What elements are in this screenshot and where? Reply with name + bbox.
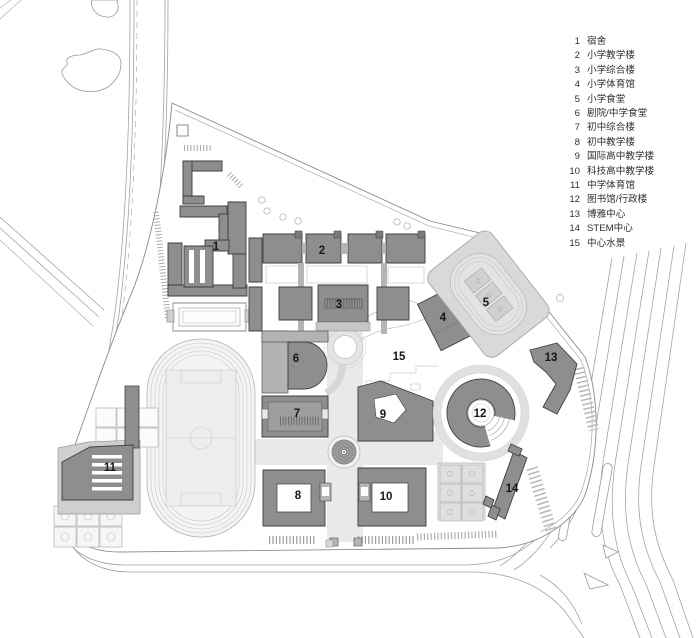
legend-item: 8初中教学楼: [566, 136, 700, 150]
legend-item: 10科技高中教学楼: [566, 165, 700, 179]
legend-num: 1: [566, 35, 580, 49]
traffic-island: [603, 545, 618, 558]
legend-item: 2小学教学楼: [566, 49, 700, 63]
building-label-14: 14: [506, 483, 519, 495]
running-track: [147, 339, 255, 537]
utility-square: [177, 125, 188, 136]
legend-num: 8: [566, 136, 580, 150]
pool-pavilion: [167, 303, 252, 331]
building-label-13: 13: [545, 352, 558, 364]
traffic-island: [584, 573, 608, 589]
legend-label: 小学教学楼: [587, 49, 635, 63]
corner-road-ticks: [0, 0, 21, 19]
legend-num: 10: [566, 165, 580, 179]
building-label-11: 11: [104, 462, 117, 474]
legend-item: 12图书馆/行政楼: [566, 193, 700, 207]
legend-item: 13博雅中心: [566, 208, 700, 222]
building-label-15: 15: [393, 351, 406, 363]
legend-item: 9国际高中教学楼: [566, 150, 700, 164]
pond-west: [62, 49, 121, 92]
legend-item: 1宿舍: [566, 35, 700, 49]
legend-num: 6: [566, 107, 580, 121]
legend-num: 13: [566, 208, 580, 222]
legend-item: 15中心水景: [566, 237, 700, 251]
legend-num: 15: [566, 237, 580, 251]
circular-plaza: [324, 326, 366, 368]
building-label-6: 6: [293, 353, 299, 365]
pond-north: [92, 0, 119, 17]
legend-label: 初中教学楼: [587, 136, 635, 150]
building-label-7: 7: [294, 408, 300, 420]
legend-label: 小学体育馆: [587, 78, 635, 92]
building-label-5: 5: [483, 297, 490, 309]
legend-item: 7初中综合楼: [566, 121, 700, 135]
legend: 1宿舍 2小学教学楼 3小学综合楼 4小学体育馆 5小学食堂 6剧院/中学食堂 …: [566, 35, 700, 251]
building-label-4: 4: [440, 312, 447, 324]
legend-num: 12: [566, 193, 580, 207]
ponds: [62, 0, 121, 92]
fountain-plaza: [328, 436, 360, 468]
legend-num: 14: [566, 222, 580, 236]
legend-item: 11中学体育馆: [566, 179, 700, 193]
legend-item: 14STEM中心: [566, 222, 700, 236]
legend-num: 7: [566, 121, 580, 135]
basketball-courts: [438, 463, 485, 521]
soccer-field: [166, 370, 236, 506]
building-label-1: 1: [213, 241, 220, 253]
legend-item: 6剧院/中学食堂: [566, 107, 700, 121]
legend-num: 2: [566, 49, 580, 63]
legend-num: 11: [566, 179, 580, 193]
site-plan-page: 1 2 3 4 5 6 7 8 9 10 11 12 13 14 15 1宿舍 …: [0, 0, 700, 638]
legend-label: 剧院/中学食堂: [587, 107, 647, 121]
building-label-9: 9: [380, 409, 386, 421]
building-label-10: 10: [380, 491, 393, 503]
legend-item: 5小学食堂: [566, 93, 700, 107]
southwest-branch-road: [0, 217, 104, 326]
building-2-primary-teaching: [249, 231, 425, 283]
legend-num: 4: [566, 78, 580, 92]
legend-num: 3: [566, 64, 580, 78]
legend-label: 科技高中教学楼: [587, 165, 654, 179]
legend-num: 9: [566, 150, 580, 164]
legend-label: 宿舍: [587, 35, 606, 49]
building-label-2: 2: [319, 245, 325, 257]
legend-item: 3小学综合楼: [566, 64, 700, 78]
legend-label: 中心水景: [587, 237, 625, 251]
building-label-8: 8: [295, 490, 302, 502]
legend-num: 5: [566, 93, 580, 107]
legend-label: STEM中心: [587, 222, 633, 236]
legend-label: 小学食堂: [587, 93, 625, 107]
legend-label: 博雅中心: [587, 208, 625, 222]
legend-label: 图书馆/行政楼: [587, 193, 647, 207]
legend-label: 国际高中教学楼: [587, 150, 654, 164]
legend-label: 小学综合楼: [587, 64, 635, 78]
legend-label: 中学体育馆: [587, 179, 635, 193]
building-label-12: 12: [474, 408, 487, 420]
legend-item: 4小学体育馆: [566, 78, 700, 92]
building-label-3: 3: [336, 299, 342, 311]
legend-label: 初中综合楼: [587, 121, 635, 135]
